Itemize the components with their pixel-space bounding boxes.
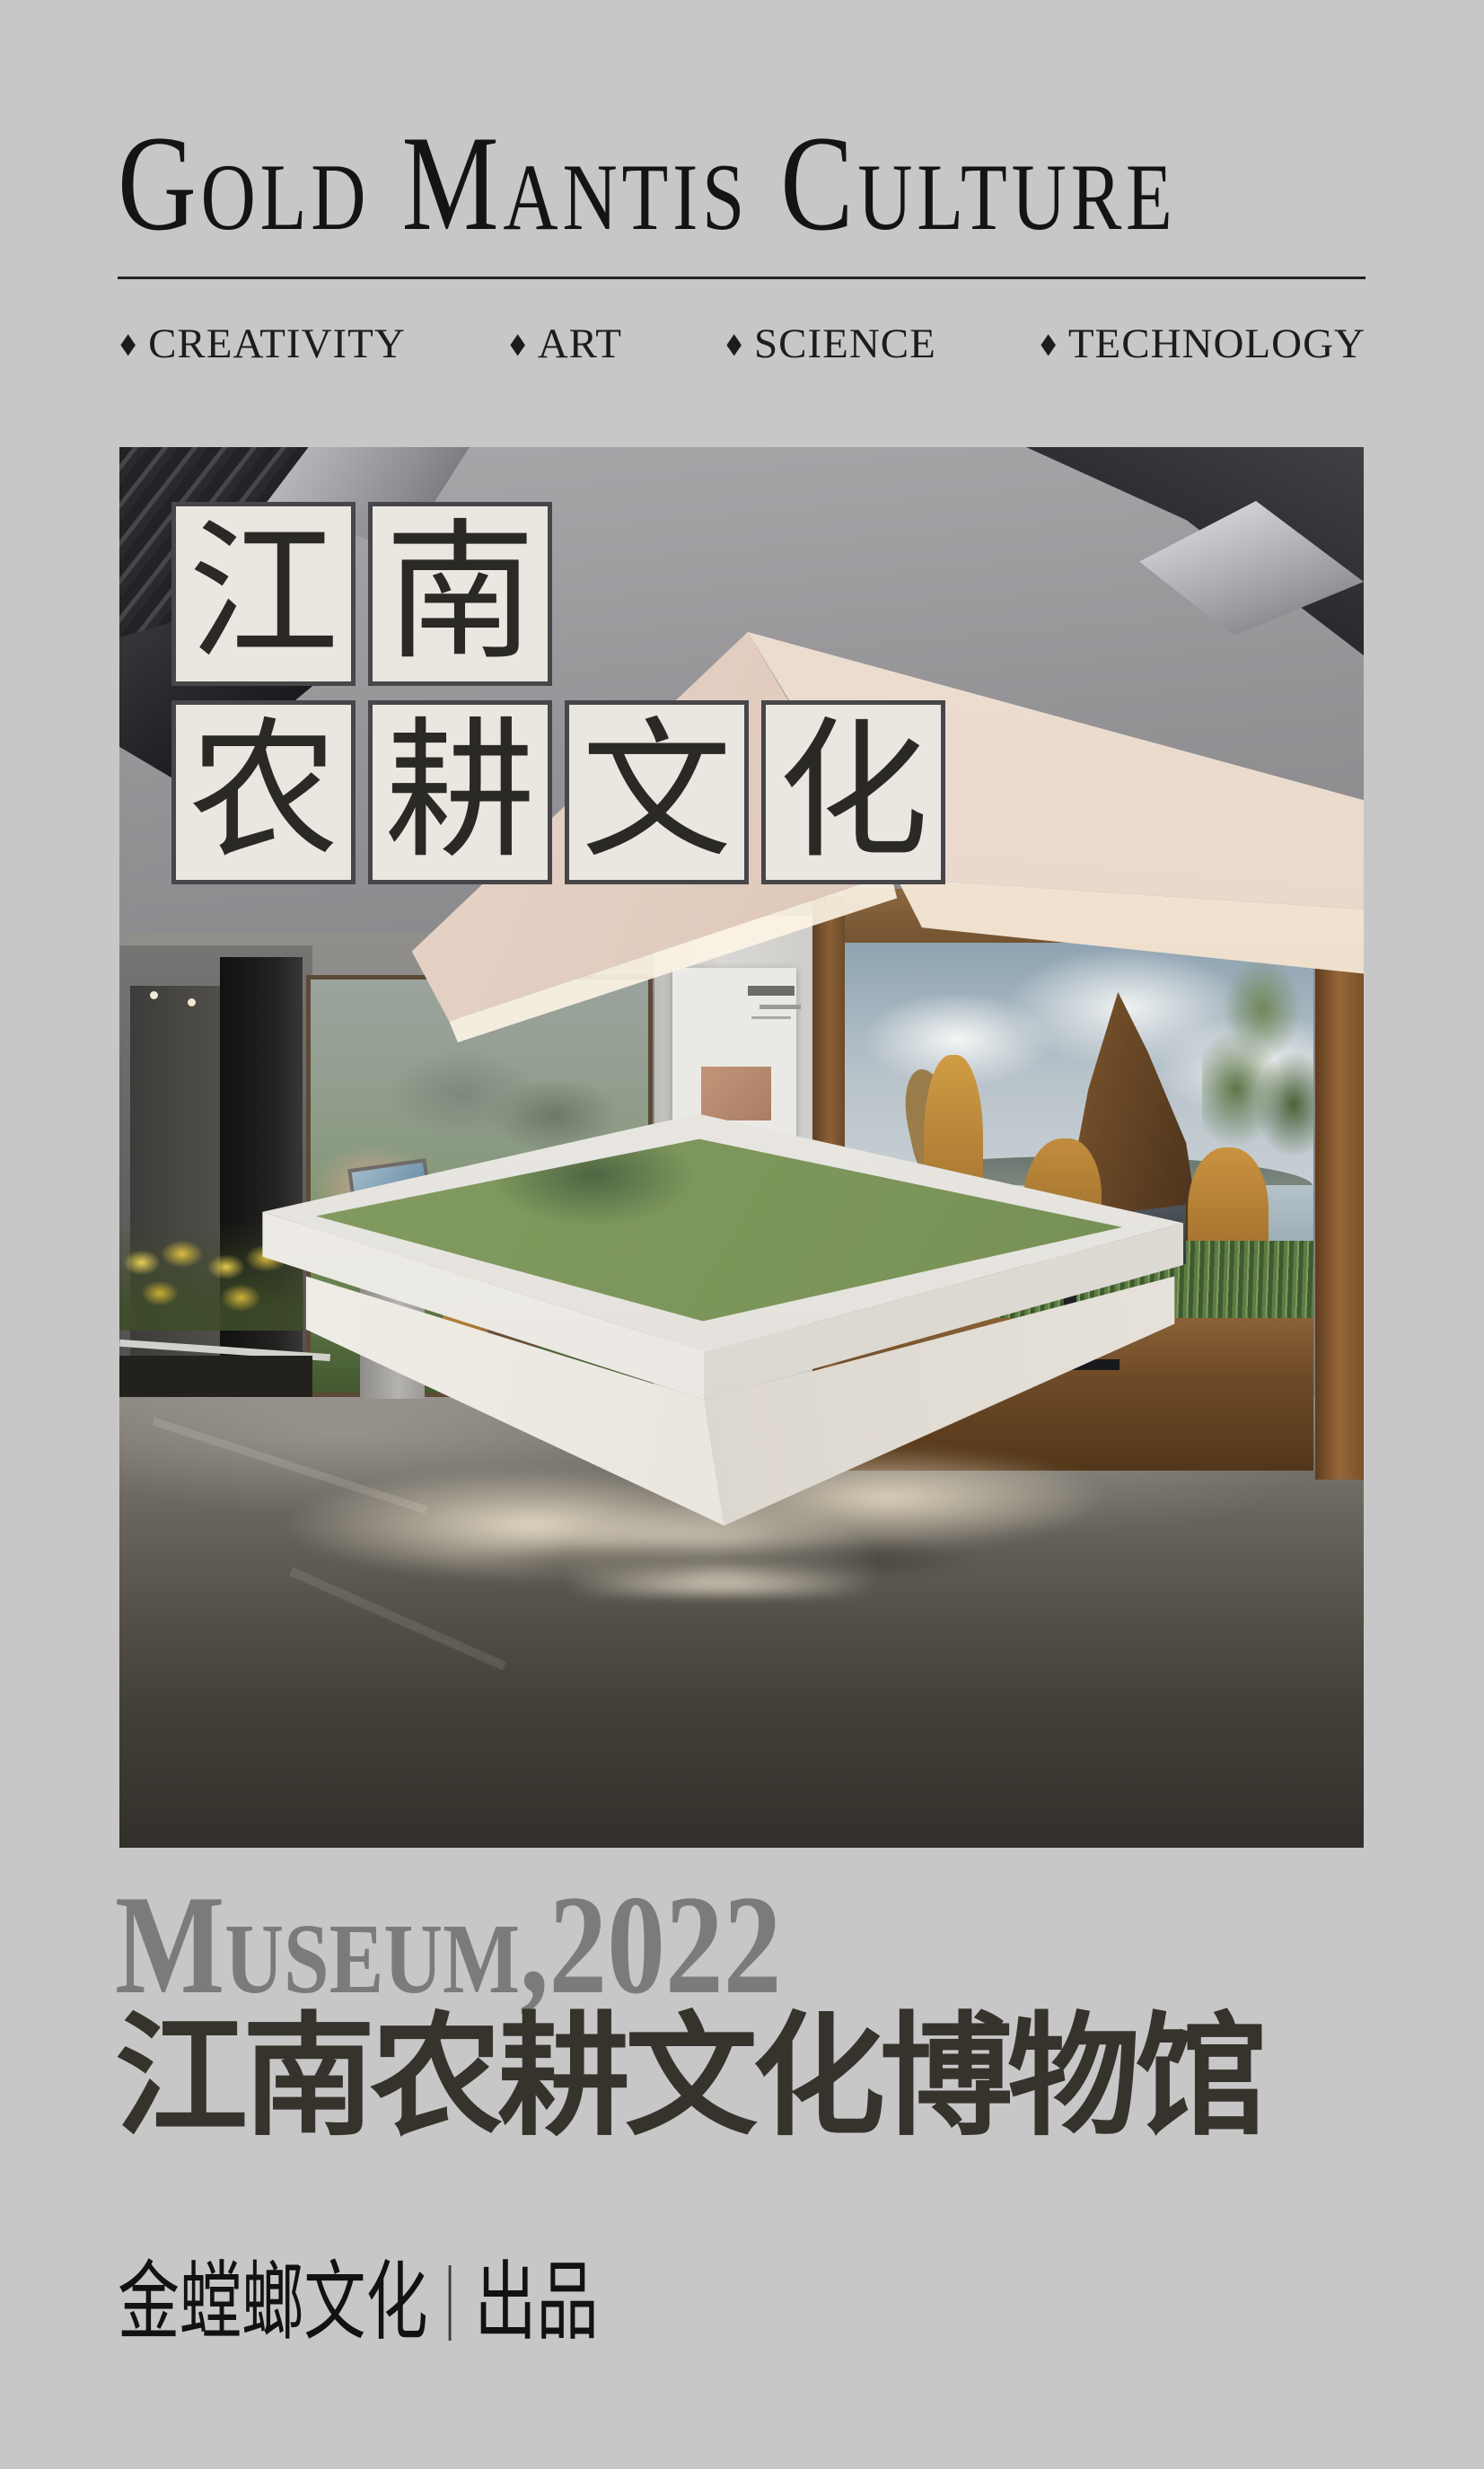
overlay-char-box: 耕 [368,700,552,884]
info-board-text-lines [748,986,795,996]
overlay-char-row-1: 江 南 [171,502,945,686]
producer-line: 金螳螂文化 出品 [118,2255,599,2350]
info-board-picture [701,1067,771,1120]
overlay-char-box: 江 [171,502,356,686]
overlay-char-box: 文 [565,700,749,884]
overlay-char-box: 农 [171,700,356,884]
overlay-character-grid: 江 南 农 耕 文 化 [171,502,945,899]
subtitle-en-text: Museum,2022 [115,1875,782,2016]
flower-bed-planter [119,1356,312,1397]
hallway-spotlights [150,991,158,999]
tag-label: TECHNOLOGY [1068,320,1365,368]
overlay-char-box: 化 [761,700,945,884]
tag-label: CREATIVITY [148,320,406,368]
tag-science: ◆SCIENCE [724,320,936,368]
divider-bar [449,2265,452,2341]
tag-label: ART [538,320,622,368]
overlay-char: 化 [778,717,929,868]
overlay-char-box: 南 [368,502,552,686]
diamond-icon: ◆ [1041,329,1056,358]
producer-suffix: 出品 [474,2255,598,2350]
diorama-tree [1202,938,1313,1190]
overlay-char: 农 [189,717,339,868]
producer-name: 金螳螂文化 [118,2255,428,2350]
overlay-char-row-2: 农 耕 文 化 [171,700,945,884]
subtitle-en: Museum,2022 [115,1875,928,2016]
poster-cover: Gold Mantis Culture ◆CREATIVITY ◆ART ◆SC… [0,0,1484,2469]
diamond-icon: ◆ [726,329,742,358]
brand-title-text: Gold Mantis Culture [118,115,1177,251]
tag-row: ◆CREATIVITY ◆ART ◆SCIENCE ◆TECHNOLOGY [118,316,1365,372]
diamond-icon: ◆ [510,329,525,358]
overlay-char: 江 [189,519,339,670]
title-cn: 江南农耕文化博物馆 [115,2009,1262,2148]
tag-creativity: ◆CREATIVITY [118,320,406,368]
tag-art: ◆ART [507,320,622,368]
tag-technology: ◆TECHNOLOGY [1038,320,1365,368]
table-base-shadow [368,1528,1090,1591]
diamond-icon: ◆ [120,329,136,358]
overlay-char: 南 [385,519,536,670]
brand-title: Gold Mantis Culture [118,115,1442,251]
divider-rule [118,277,1365,279]
overlay-char: 文 [582,717,733,868]
overlay-char: 耕 [385,717,536,868]
tag-label: SCIENCE [754,320,936,368]
museum-photo: 江 南 农 耕 文 化 [119,447,1364,1848]
